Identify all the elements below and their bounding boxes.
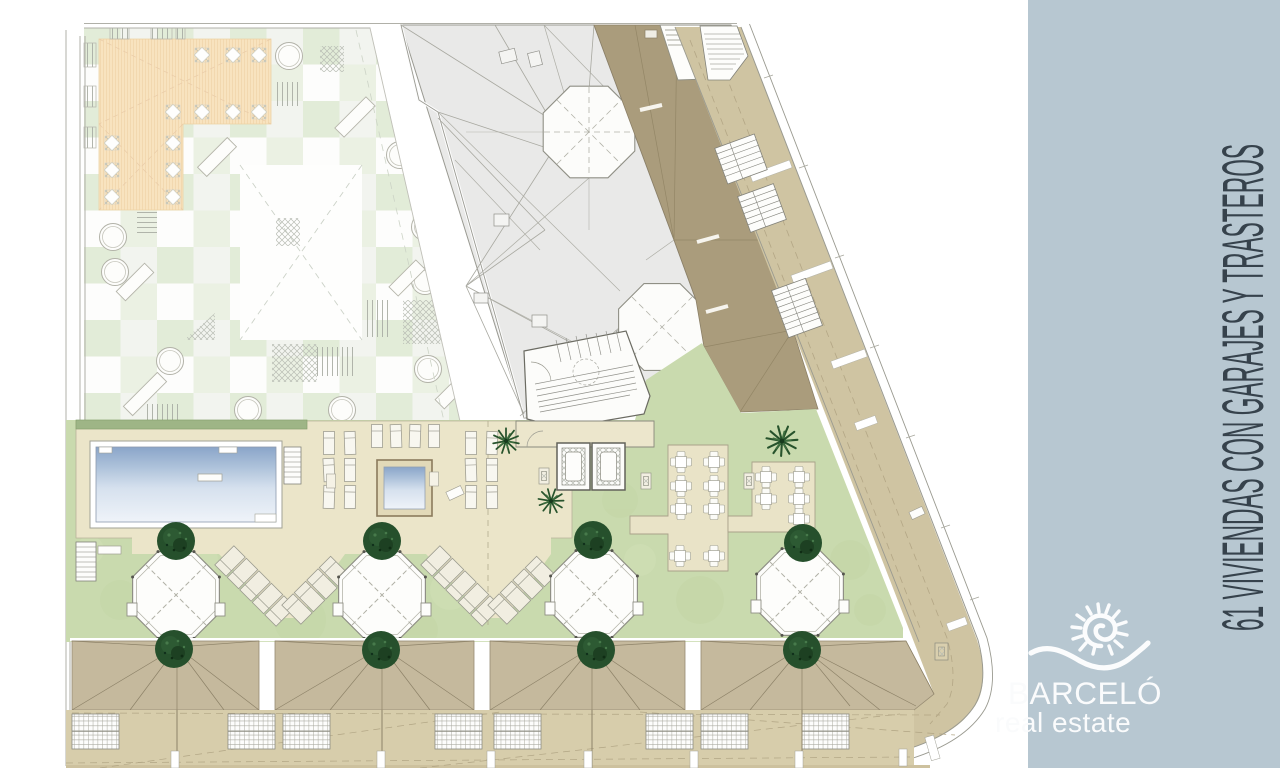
svg-text:BARCELÓ: BARCELÓ [1008,675,1162,711]
svg-text:61 VIVIENDAS CON GARAJES Y TRA: 61 VIVIENDAS CON GARAJES Y TRASTEROS [1211,144,1276,631]
svg-text:real estate: real estate [995,707,1131,738]
